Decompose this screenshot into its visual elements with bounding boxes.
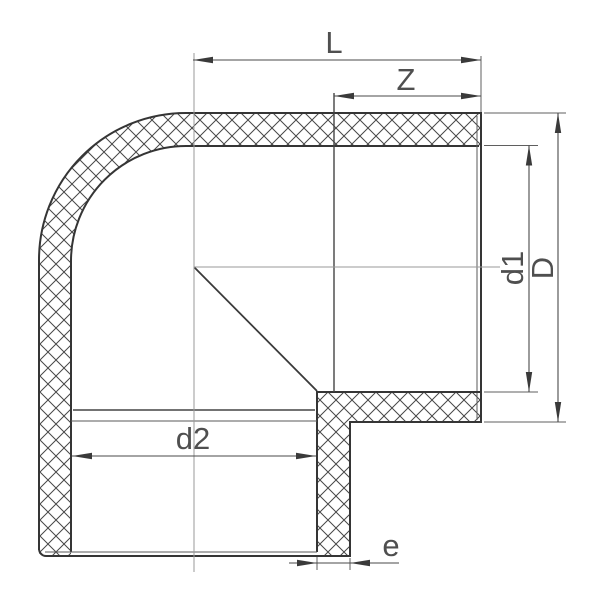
dimension-L-label: L <box>325 25 342 60</box>
dimension-d2: d2 <box>72 421 316 459</box>
dimension-d2-label: d2 <box>176 421 210 456</box>
arrowhead <box>72 453 92 459</box>
dimension-Z-label: Z <box>397 62 416 97</box>
arrowhead <box>461 57 481 63</box>
arrowhead <box>555 113 561 133</box>
elbow-miter-diagonal <box>194 267 317 391</box>
dimension-Z: Z <box>334 62 481 99</box>
elbow-fitting-section-drawing: L Z d1 D d2 e <box>0 0 600 600</box>
technical-drawing-canvas: L Z d1 D d2 e <box>0 0 600 600</box>
arrowhead <box>296 453 316 459</box>
arrowhead <box>334 93 354 99</box>
arrowhead <box>526 372 532 392</box>
arrowhead <box>350 560 370 566</box>
arrowhead <box>297 560 317 566</box>
arrowhead <box>461 93 481 99</box>
dimension-L: L <box>193 25 481 112</box>
arrowhead <box>526 146 532 166</box>
dimension-e-label: e <box>382 528 399 563</box>
dimension-D-label: D <box>525 257 560 279</box>
arrowhead <box>555 402 561 422</box>
arrowhead <box>193 57 213 63</box>
